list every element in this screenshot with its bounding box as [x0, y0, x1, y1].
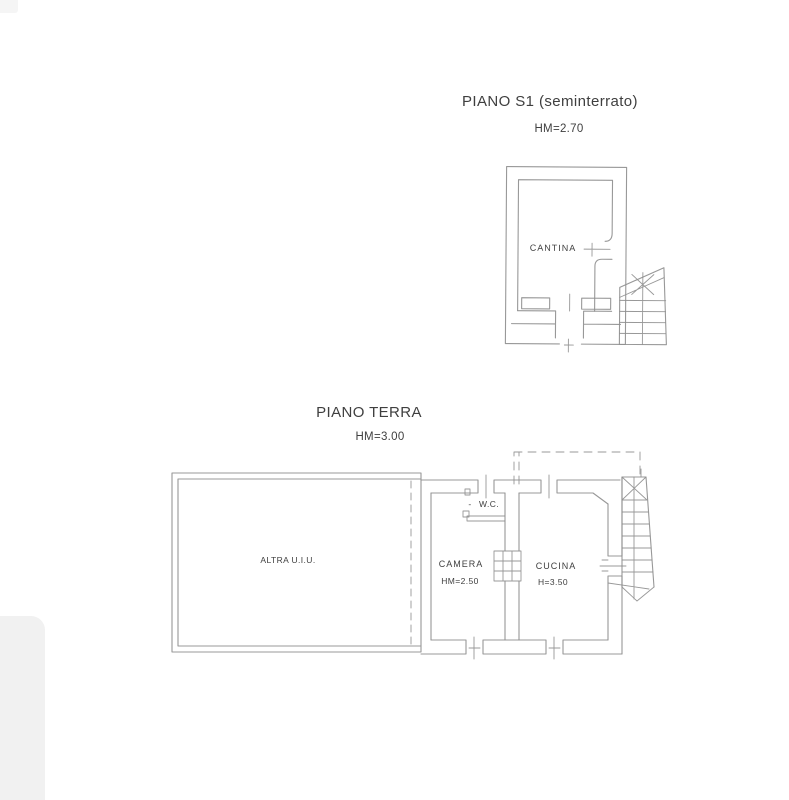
room-label-camera-height: HM=2.50	[441, 576, 479, 586]
dashed-overhang-outline	[514, 452, 640, 484]
scan-artifact-top-left	[0, 0, 18, 13]
piano-s1-section: PIANO S1 (seminterrato) HM=2.70 CANTINA	[462, 93, 668, 353]
cantina-outer-walls	[505, 167, 626, 345]
cucina-right-wall	[608, 477, 622, 654]
piano-terra-plan: ALTRA U.I.U. - W.C. CAMERA HM=2.50	[172, 452, 654, 659]
camera-cucina-wall	[494, 493, 521, 640]
terra-top-wall-ticks	[486, 475, 549, 498]
room-label-wc: W.C.	[479, 499, 499, 509]
piano-terra-height-label: HM=3.00	[355, 431, 404, 443]
piano-s1-title: PIANO S1 (seminterrato)	[462, 93, 638, 110]
cantina-door-tick	[584, 243, 610, 256]
scan-artifact-bottom-left	[0, 616, 45, 800]
cucina-room: CUCINA H=3.50	[536, 477, 626, 654]
stairs-terra	[608, 469, 654, 601]
room-label-camera: CAMERA	[439, 559, 484, 569]
floor-plan-drawing: PIANO S1 (seminterrato) HM=2.70 CANTINA …	[0, 0, 789, 800]
piano-s1-plan: CANTINA	[505, 167, 667, 353]
cantina-passage-ticks	[564, 294, 573, 352]
terra-top-wall	[421, 480, 620, 504]
room-label-cucina: CUCINA	[536, 561, 577, 571]
terra-bottom-wall	[421, 640, 622, 654]
piano-terra-title: PIANO TERRA	[316, 404, 422, 421]
room-label-cantina: CANTINA	[530, 243, 577, 253]
room-label-cucina-height: H=3.50	[538, 577, 568, 587]
stairs-s1	[619, 267, 667, 344]
cantina-bottom-wall	[511, 298, 620, 339]
piano-s1-height-label: HM=2.70	[534, 123, 583, 135]
piano-terra-section: PIANO TERRA HM=3.00 ALTRA U.I.U. - W.C. …	[172, 404, 654, 659]
room-label-wc-dash: -	[468, 499, 471, 509]
flue-grid	[494, 551, 521, 581]
room-label-altra-uiu: ALTRA U.I.U.	[260, 555, 315, 565]
stairs-terra-outline	[622, 477, 654, 587]
altra-uiu-room: ALTRA U.I.U.	[172, 473, 421, 652]
cantina-door-pier	[595, 259, 612, 311]
scanned-plan-page: PIANO S1 (seminterrato) HM=2.70 CANTINA …	[0, 0, 789, 800]
